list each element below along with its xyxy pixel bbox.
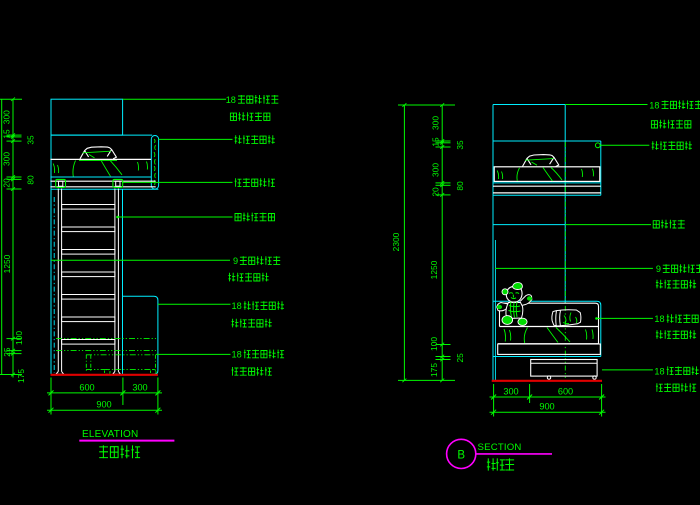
svg-text:600: 600 <box>558 387 573 397</box>
svg-text:900: 900 <box>96 400 111 410</box>
svg-text:1250: 1250 <box>2 254 12 273</box>
svg-text:35: 35 <box>455 140 465 150</box>
svg-text:SECTION: SECTION <box>478 442 522 453</box>
svg-text:1250: 1250 <box>429 260 439 279</box>
svg-text:300: 300 <box>431 116 441 130</box>
svg-text:ELEVATION: ELEVATION <box>82 429 138 440</box>
svg-text:600: 600 <box>79 382 94 392</box>
svg-text:80: 80 <box>455 181 465 191</box>
svg-text:80: 80 <box>26 175 36 185</box>
svg-text:100: 100 <box>14 331 24 345</box>
svg-text:900: 900 <box>539 402 554 412</box>
svg-text:B: B <box>457 449 465 461</box>
svg-text:100: 100 <box>429 337 439 351</box>
svg-text:175: 175 <box>429 363 439 377</box>
svg-text:18: 18 <box>232 350 242 360</box>
svg-text:300: 300 <box>431 163 441 177</box>
svg-text:35: 35 <box>26 135 36 145</box>
svg-text:9: 9 <box>656 264 661 274</box>
svg-text:300: 300 <box>2 110 12 124</box>
svg-text:175: 175 <box>16 369 26 383</box>
svg-text:18: 18 <box>654 314 664 324</box>
svg-text:25: 25 <box>455 353 465 363</box>
svg-text:9: 9 <box>233 256 238 266</box>
svg-text:300: 300 <box>2 152 12 166</box>
svg-text:20: 20 <box>431 187 441 197</box>
svg-text:15: 15 <box>431 137 441 147</box>
svg-text:18: 18 <box>649 100 659 110</box>
svg-text:15: 15 <box>2 129 12 139</box>
svg-text:18: 18 <box>232 301 242 311</box>
svg-text:2300: 2300 <box>391 232 401 251</box>
svg-text:300: 300 <box>132 382 147 392</box>
svg-text:18: 18 <box>226 95 236 105</box>
svg-text:18: 18 <box>654 366 664 376</box>
svg-text:25: 25 <box>2 347 12 357</box>
svg-text:300: 300 <box>503 387 518 397</box>
svg-text:20: 20 <box>2 178 12 188</box>
